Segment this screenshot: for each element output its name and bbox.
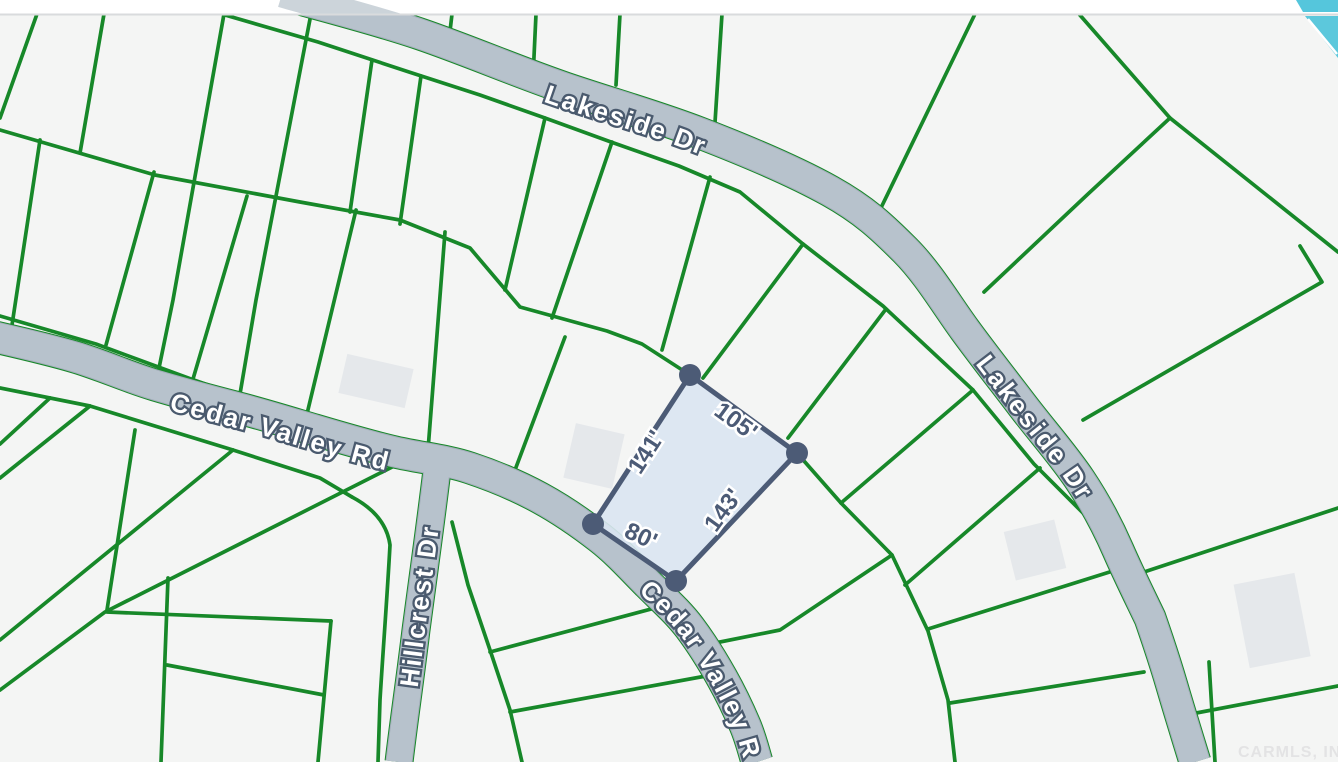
svg-text:CARMLS, INC: CARMLS, INC bbox=[1238, 744, 1338, 761]
